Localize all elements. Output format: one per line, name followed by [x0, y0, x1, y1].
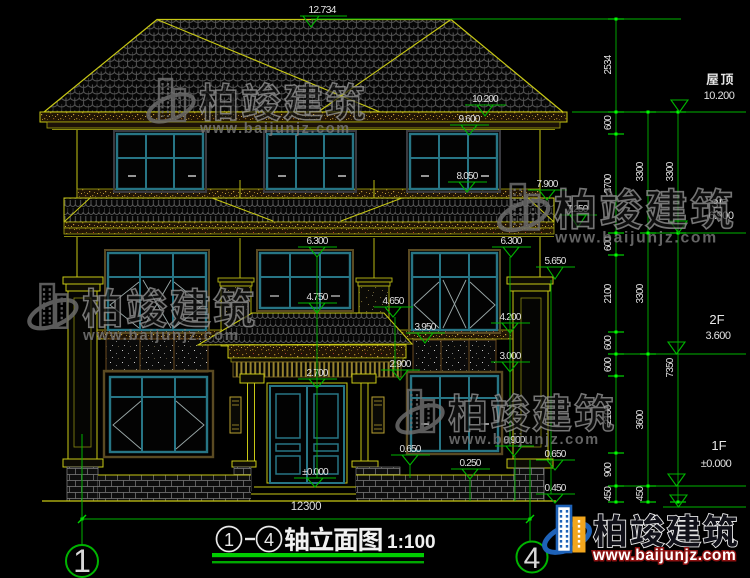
svg-text:2.700: 2.700: [306, 368, 328, 379]
svg-text:1:100: 1:100: [387, 532, 436, 553]
svg-text:6.300: 6.300: [500, 236, 522, 247]
svg-text:3300: 3300: [635, 283, 646, 303]
svg-text:12.734: 12.734: [308, 4, 336, 16]
svg-text:1F: 1F: [711, 438, 726, 453]
svg-text:3300: 3300: [635, 161, 646, 181]
svg-text:600: 600: [603, 115, 614, 131]
svg-text:10.200: 10.200: [472, 94, 499, 105]
svg-text:4.650: 4.650: [382, 296, 404, 307]
svg-text:4: 4: [264, 530, 274, 550]
svg-text:0.450: 0.450: [544, 483, 566, 494]
svg-text:7350: 7350: [665, 357, 676, 377]
svg-text:±0.000: ±0.000: [302, 467, 329, 478]
svg-text:3300: 3300: [665, 161, 676, 181]
svg-text:2100: 2100: [603, 283, 614, 303]
svg-text:12300: 12300: [291, 501, 321, 513]
svg-text:10.200: 10.200: [704, 90, 735, 102]
svg-text:2F: 2F: [709, 312, 724, 327]
svg-text:9.600: 9.600: [458, 114, 480, 125]
svg-text:0.650: 0.650: [544, 449, 566, 460]
svg-text:2534: 2534: [603, 54, 614, 74]
svg-text:2.900: 2.900: [389, 359, 411, 370]
svg-text:1: 1: [224, 530, 234, 550]
svg-text:4.200: 4.200: [499, 312, 521, 323]
svg-text:0.650: 0.650: [399, 444, 421, 455]
svg-text:900: 900: [603, 462, 614, 478]
svg-text:www.baijunjz.com: www.baijunjz.com: [592, 547, 736, 564]
svg-text:600: 600: [603, 335, 614, 351]
svg-text:5.650: 5.650: [544, 256, 566, 267]
svg-text:3.600: 3.600: [705, 330, 730, 342]
svg-text:4: 4: [524, 542, 541, 575]
svg-text:4.750: 4.750: [306, 292, 328, 303]
svg-text:450: 450: [603, 486, 614, 502]
svg-text:1: 1: [73, 543, 91, 578]
svg-text:7.900: 7.900: [536, 179, 558, 190]
svg-text:±0.000: ±0.000: [701, 458, 732, 470]
svg-text:3.000: 3.000: [499, 351, 521, 362]
svg-text:8.050: 8.050: [456, 171, 478, 182]
svg-text:0.250: 0.250: [459, 458, 481, 469]
svg-text:450: 450: [635, 486, 646, 502]
svg-text:3600: 3600: [635, 409, 646, 429]
svg-text:3.950: 3.950: [414, 322, 436, 333]
svg-text:6.300: 6.300: [306, 236, 328, 247]
svg-text:600: 600: [603, 357, 614, 373]
